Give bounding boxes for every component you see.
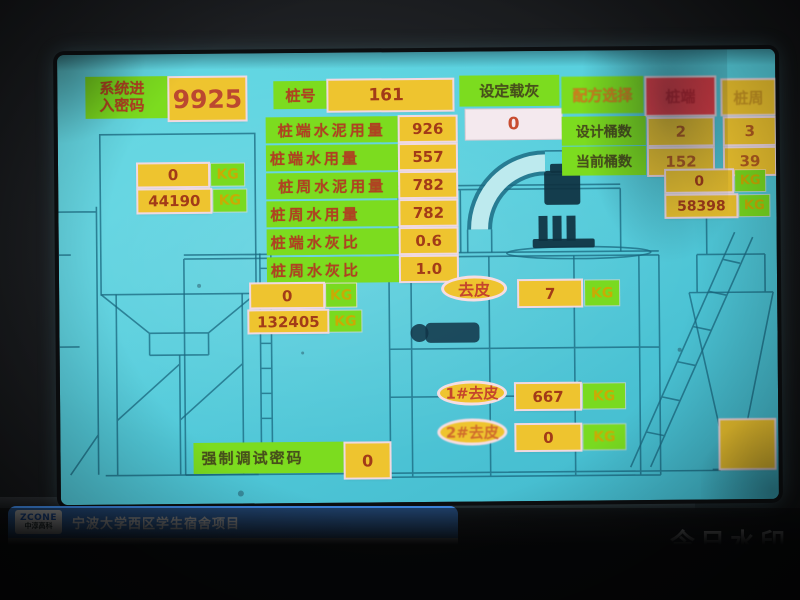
system-password-label: 系统进入密码	[85, 76, 169, 119]
mid-scale-total: 132405	[249, 311, 327, 333]
pile-number-label: 桩号	[273, 81, 327, 109]
tare1-weight-unit: KG	[583, 383, 625, 408]
debug-password-field[interactable]: 0	[345, 443, 389, 477]
param-label: 桩周水泥用量	[266, 172, 398, 199]
mid-scale-total-unit: KG	[329, 310, 361, 331]
tare2-weight-unit: KG	[583, 424, 625, 449]
param-field[interactable]: 0.6	[401, 229, 457, 253]
param-field[interactable]: 1.0	[401, 257, 457, 281]
design-bucket-side: 3	[725, 118, 775, 144]
system-password-field[interactable]: 9925	[169, 77, 245, 120]
set-load-field[interactable]: 0	[466, 109, 562, 140]
param-label: 桩周水灰比	[267, 256, 399, 283]
right-scale-total: 58398	[666, 195, 736, 217]
mixer-weight: 7	[519, 281, 581, 307]
tare2-button[interactable]: 2#去皮	[437, 418, 507, 446]
right-scale-current: 0	[666, 170, 732, 192]
recipe-option-pile-end[interactable]: 桩端	[646, 77, 714, 115]
left-scale-current: 0	[138, 164, 208, 187]
tare1-button[interactable]: 1#去皮	[437, 380, 507, 406]
tare1-weight: 667	[516, 384, 580, 410]
mixer-motor	[532, 163, 595, 248]
current-bucket-label: 当前桶数	[562, 146, 646, 176]
design-bucket-label: 设计桶数	[562, 116, 646, 146]
param-field[interactable]: 782	[400, 201, 456, 225]
left-scale-total: 44190	[138, 190, 210, 213]
param-field[interactable]: 782	[400, 173, 456, 197]
param-field[interactable]: 926	[400, 117, 456, 141]
hmi-screen: 系统进入密码 9925 桩号 161 设定载灰 0 配方选择 桩端 桩周 设计桶…	[57, 49, 779, 505]
pile-number-field[interactable]: 161	[328, 80, 452, 111]
mid-scale-current-unit: KG	[326, 284, 356, 307]
left-scale-total-unit: KG	[213, 189, 246, 211]
photo-of-hmi-screen: 系统进入密码 9925 桩号 161 设定载灰 0 配方选择 桩端 桩周 设计桶…	[0, 0, 800, 600]
recipe-select-label: 配方选择	[561, 76, 643, 114]
set-load-label: 设定载灰	[459, 75, 559, 107]
tare2-weight: 0	[516, 425, 580, 451]
param-label: 桩端水灰比	[267, 228, 399, 255]
recipe-option-pile-side[interactable]: 桩周	[722, 80, 774, 114]
right-scale-total-unit: KG	[739, 195, 769, 216]
pump	[410, 322, 479, 343]
screen-corner-button[interactable]	[720, 420, 774, 468]
photo-bottom-shadow	[0, 508, 800, 600]
param-label: 桩端水用量	[266, 144, 398, 171]
left-scale-current-unit: KG	[211, 164, 244, 186]
param-label: 桩端水泥用量	[266, 116, 398, 143]
param-field[interactable]: 557	[400, 145, 456, 169]
param-label: 桩周水用量	[266, 200, 398, 227]
mid-scale-current: 0	[251, 284, 323, 308]
right-scale-current-unit: KG	[735, 170, 765, 191]
debug-password-label: 强制调试密码	[193, 442, 343, 474]
mixer-weight-unit: KG	[585, 280, 619, 305]
design-bucket-end: 2	[649, 118, 713, 145]
